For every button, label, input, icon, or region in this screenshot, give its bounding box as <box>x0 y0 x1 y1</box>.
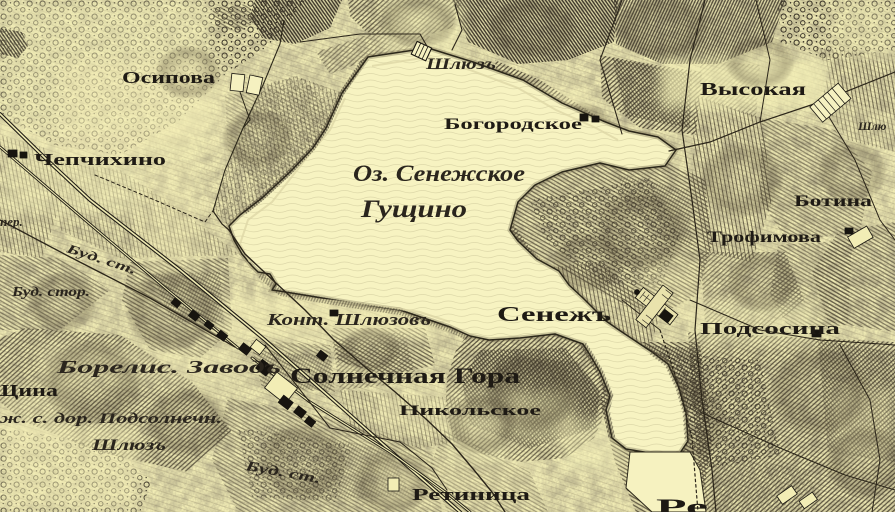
svg-text:Буд. стор.: Буд. стор. <box>11 285 90 300</box>
svg-text:Никольское: Никольское <box>399 403 542 419</box>
svg-text:Высокая: Высокая <box>700 79 806 99</box>
svg-text:Трофимова: Трофимова <box>707 229 821 246</box>
svg-text:Оз. Сенежское: Оз. Сенежское <box>353 161 525 186</box>
svg-text:Гущино: Гущино <box>360 196 467 223</box>
svg-text:пер.: пер. <box>0 214 23 229</box>
svg-text:Конт. Шлюзовъ: Конт. Шлюзовъ <box>266 310 431 329</box>
svg-text:Осипова: Осипова <box>122 68 216 87</box>
svg-text:Борелис. Заводъ: Борелис. Заводъ <box>55 357 281 377</box>
svg-text:Богородское: Богородское <box>444 116 582 133</box>
svg-text:Ботина: Ботина <box>794 193 872 210</box>
svg-text:ж. с. дор. Подсолнечн.: ж. с. дор. Подсолнечн. <box>0 411 222 427</box>
svg-text:Шлюзъ: Шлюзъ <box>91 437 166 454</box>
svg-text:Подсосина: Подсосина <box>700 319 841 338</box>
svg-text:Чепчихино: Чепчихино <box>34 150 166 169</box>
svg-text:Шлюзъ: Шлюзъ <box>425 56 496 73</box>
svg-text:Шлю: Шлю <box>857 119 887 133</box>
svg-text:Ре: Ре <box>656 494 709 512</box>
svg-text:Щина: Щина <box>0 381 59 400</box>
svg-text:Солнечная Гора: Солнечная Гора <box>290 363 520 388</box>
svg-text:Сенежъ: Сенежъ <box>497 302 611 326</box>
svg-text:Ретиница: Ретиница <box>412 485 531 504</box>
